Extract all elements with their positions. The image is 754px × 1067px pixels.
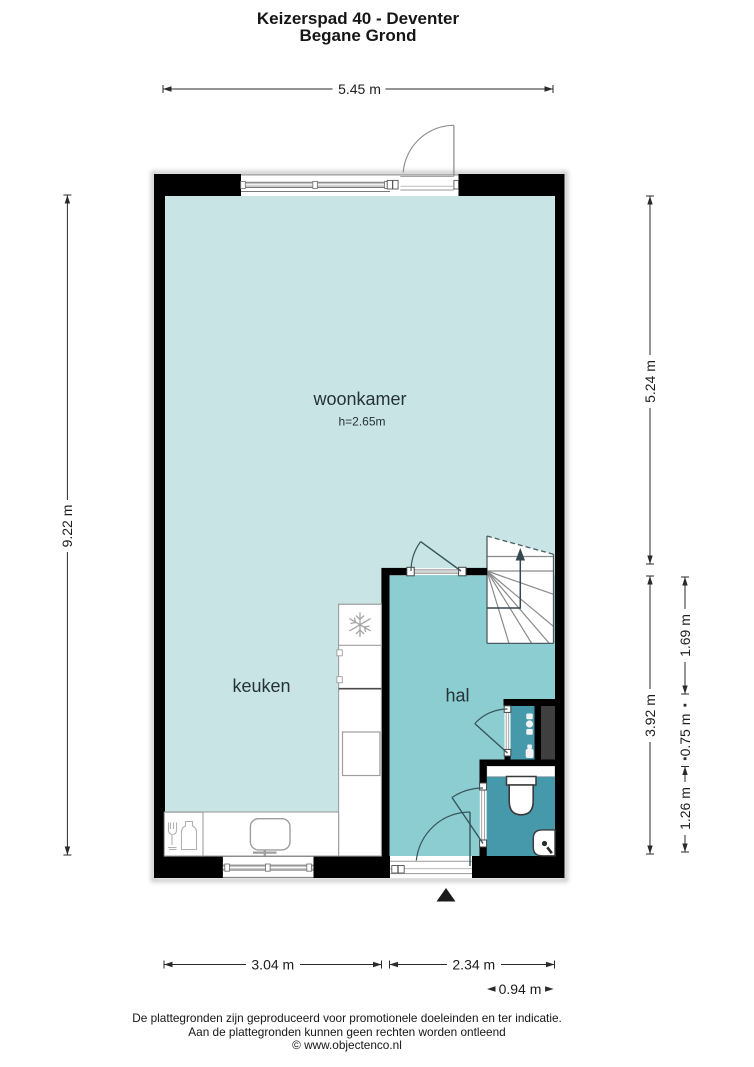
svg-text:h=2.65m: h=2.65m — [338, 415, 385, 429]
svg-text:3.04 m: 3.04 m — [251, 956, 294, 972]
svg-text:1.69 m: 1.69 m — [677, 614, 693, 657]
svg-text:keuken: keuken — [232, 676, 290, 696]
svg-text:hal: hal — [445, 686, 469, 706]
svg-text:woonkamer: woonkamer — [312, 389, 406, 409]
svg-text:5.45 m: 5.45 m — [338, 81, 381, 97]
svg-text:2.34 m: 2.34 m — [452, 956, 495, 972]
svg-text:9.22 m: 9.22 m — [59, 505, 75, 548]
svg-text:1.26 m: 1.26 m — [677, 787, 693, 830]
svg-text:5.24 m: 5.24 m — [642, 360, 658, 403]
svg-text:0.94 m: 0.94 m — [499, 981, 542, 997]
svg-text:0.75 m: 0.75 m — [677, 714, 693, 757]
svg-text:3.92 m: 3.92 m — [642, 694, 658, 737]
